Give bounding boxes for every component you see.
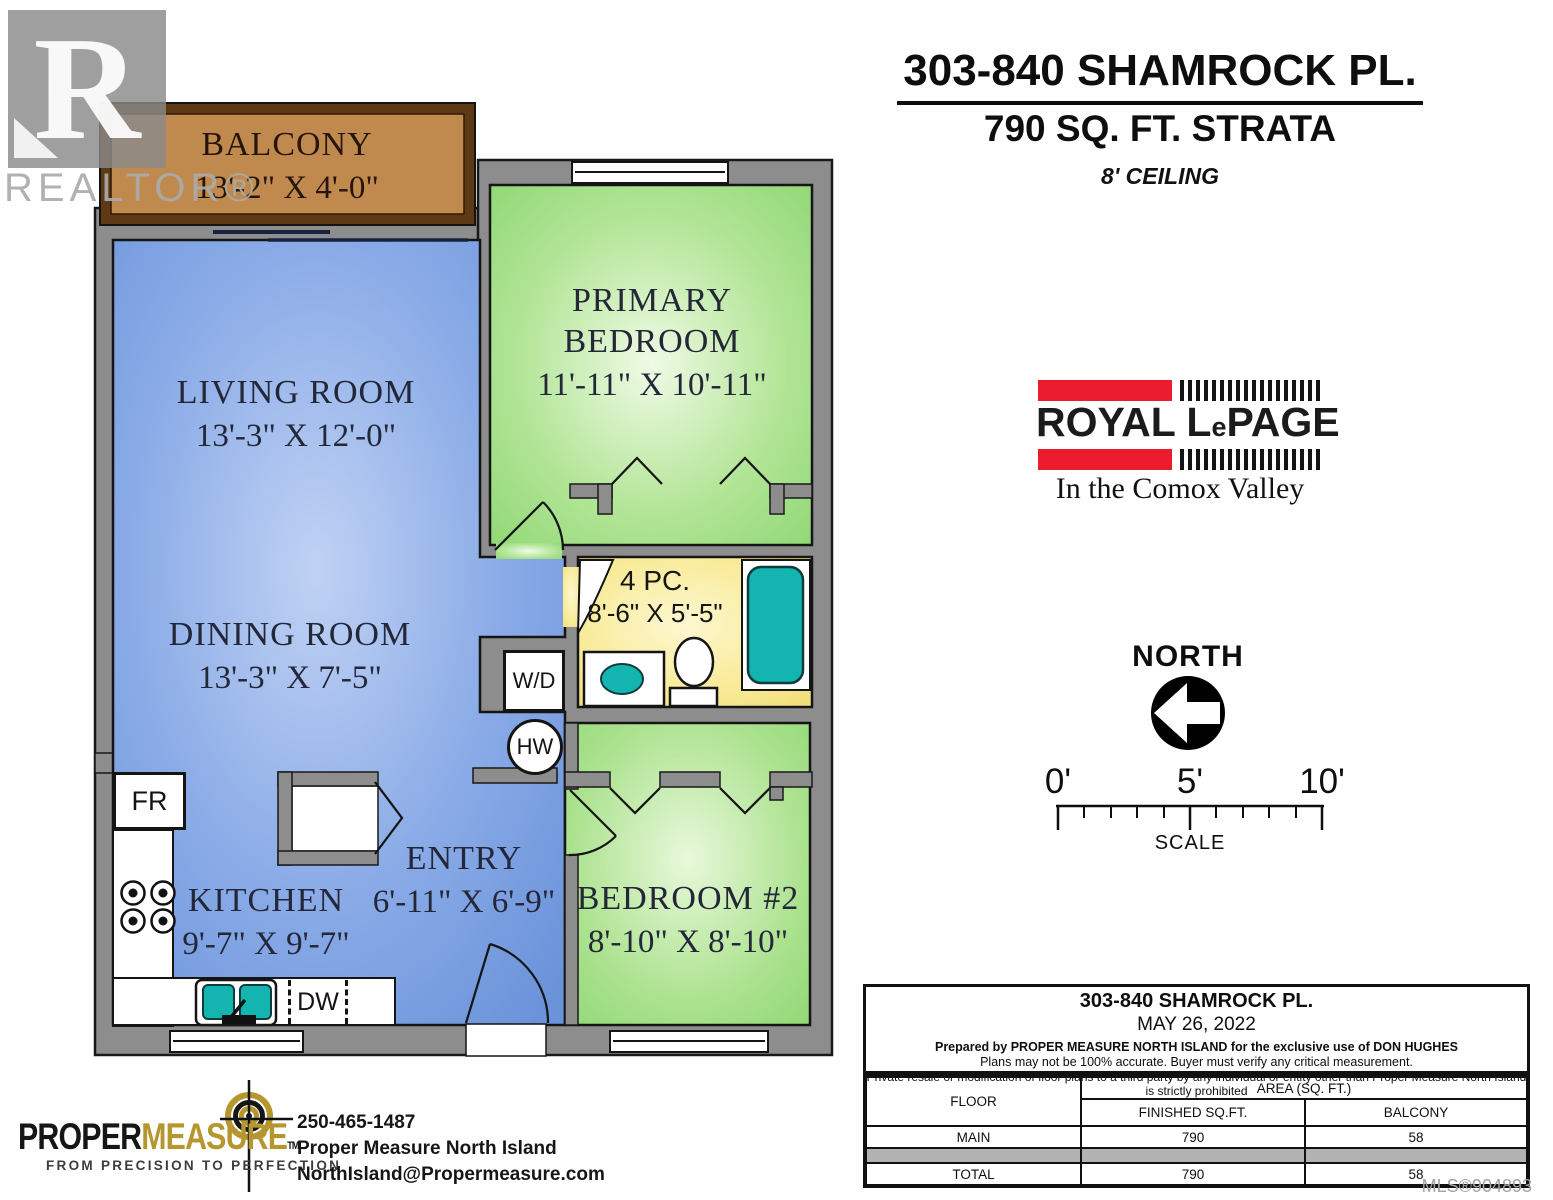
info-date: MAY 26, 2022 (866, 1014, 1527, 1036)
bedroom2-label: BEDROOM #2 8'-10" X 8'-10" (577, 880, 800, 961)
info-prepared-line: Prepared by PROPER MEASURE NORTH ISLAND … (866, 1040, 1527, 1054)
bathroom-dims: 8'-6" X 5'-5" (587, 598, 722, 629)
rlp-word-page: PAGE (1226, 399, 1339, 445)
bathroom-name: 4 PC. (587, 565, 722, 597)
propermeasure-wordmark: PROPERMEASURETM (18, 1116, 299, 1158)
table-separator-1 (866, 1148, 1081, 1163)
fridge-label: FR (132, 786, 168, 817)
bedroom2-dims: 8'-10" X 8'-10" (577, 924, 800, 961)
scale-tick-5: 5' (1177, 762, 1203, 802)
washer-dryer-label: W/D (513, 668, 556, 694)
rlp-wordmark: ROYAL LePAGE (1036, 399, 1324, 446)
col-header-area: AREA (SQ. FT.) (1081, 1077, 1527, 1099)
info-accuracy-line: Plans may not be 100% accurate. Buyer mu… (866, 1055, 1527, 1069)
scale-tick-10: 10' (1299, 762, 1345, 802)
mls-number: MLS®904893 (1330, 1176, 1532, 1197)
pm-word-proper: PROPER (18, 1116, 141, 1157)
info-address: 303-840 SHAMROCK PL. (866, 990, 1527, 1013)
hot-water-label: HW (517, 734, 554, 760)
ceiling-note: 8' CEILING (820, 163, 1500, 190)
entry-dims: 6'-11" X 6'-9" (373, 884, 555, 921)
scale-label: SCALE (1090, 832, 1290, 855)
col-header-balcony: BALCONY (1305, 1099, 1527, 1126)
col-header-finished: FINISHED SQ.FT. (1081, 1099, 1305, 1126)
pm-phone: 250-465-1487 (297, 1110, 605, 1136)
rlp-red-bar-top (1038, 380, 1172, 401)
primary-bedroom-name-1: PRIMARY (537, 282, 766, 320)
primary-bedroom-name-2: BEDROOM (537, 323, 766, 361)
table-separator-3 (1305, 1148, 1527, 1163)
realtor-r-glyph: R (34, 15, 141, 163)
rlp-red-bar-bottom (1038, 449, 1172, 470)
dining-room-dims: 13'-3" X 7'-5" (169, 660, 411, 697)
table-row-total-floor: TOTAL (866, 1163, 1081, 1185)
pm-email: NorthIsland@Propermeasure.com (297, 1162, 605, 1188)
table-row-main-finished: 790 (1081, 1126, 1305, 1148)
rlp-stripes-bottom (1180, 449, 1322, 470)
primary-bedroom-label: PRIMARY BEDROOM 11'-11" X 10'-11" (537, 282, 766, 404)
page-title: 303-840 SHAMROCK PL. (820, 46, 1500, 105)
sqft-subtitle: 790 SQ. FT. STRATA (820, 108, 1500, 150)
pm-contact-block: 250-465-1487 Proper Measure North Island… (297, 1110, 605, 1188)
living-room-dims: 13'-3" X 12'-0" (177, 418, 416, 455)
floorplan-sheet: R REALTOR® BALCONY 13'-2" X 4'-0" LIVING… (0, 0, 1553, 1200)
pm-company: Proper Measure North Island (297, 1136, 605, 1162)
scale-tick-0: 0' (1045, 762, 1071, 802)
balcony-name: BALCONY (195, 126, 379, 164)
entry-label: ENTRY 6'-11" X 6'-9" (373, 840, 555, 921)
dining-room-name: DINING ROOM (169, 616, 411, 654)
fridge-box: FR (113, 772, 186, 830)
washer-dryer-box: W/D (503, 650, 565, 712)
realtor-wordmark: REALTOR® (4, 166, 259, 211)
plan-info-box: 303-840 SHAMROCK PL. MAY 26, 2022 Prepar… (863, 984, 1530, 1074)
kitchen-name: KITCHEN (182, 882, 349, 920)
north-label: NORTH (1088, 640, 1288, 674)
table-row-main-floor: MAIN (866, 1126, 1081, 1148)
rlp-word-l: L (1186, 399, 1211, 445)
bedroom2-name: BEDROOM #2 (577, 880, 800, 918)
pm-word-measure: MEASURE (141, 1116, 287, 1157)
dining-room-label: DINING ROOM 13'-3" X 7'-5" (169, 616, 411, 697)
table-row-total-finished: 790 (1081, 1163, 1305, 1185)
bathroom-label: 4 PC. 8'-6" X 5'-5" (587, 565, 722, 629)
primary-bedroom-dims: 11'-11" X 10'-11" (537, 367, 766, 404)
area-table: FLOOR AREA (SQ. FT.) FINISHED SQ.FT. BAL… (863, 1074, 1530, 1188)
address-title: 303-840 SHAMROCK PL. (897, 46, 1422, 105)
entry-name: ENTRY (373, 840, 555, 878)
living-room-label: LIVING ROOM 13'-3" X 12'-0" (177, 374, 416, 455)
kitchen-dims: 9'-7" X 9'-7" (182, 926, 349, 963)
table-separator-2 (1081, 1148, 1305, 1163)
table-row-main-balcony: 58 (1305, 1126, 1527, 1148)
kitchen-label: KITCHEN 9'-7" X 9'-7" (182, 882, 349, 963)
dishwasher-label: DW (297, 988, 339, 1017)
hot-water-tank: HW (507, 719, 563, 775)
rlp-stripes-top (1180, 380, 1322, 401)
living-room-name: LIVING ROOM (177, 374, 416, 412)
col-header-floor: FLOOR (866, 1077, 1081, 1126)
rlp-word-e: e (1211, 412, 1226, 442)
rlp-word-royal: ROYAL (1036, 399, 1175, 445)
dishwasher-box: DW (288, 980, 348, 1024)
rlp-tagline: In the Comox Valley (1036, 472, 1324, 506)
